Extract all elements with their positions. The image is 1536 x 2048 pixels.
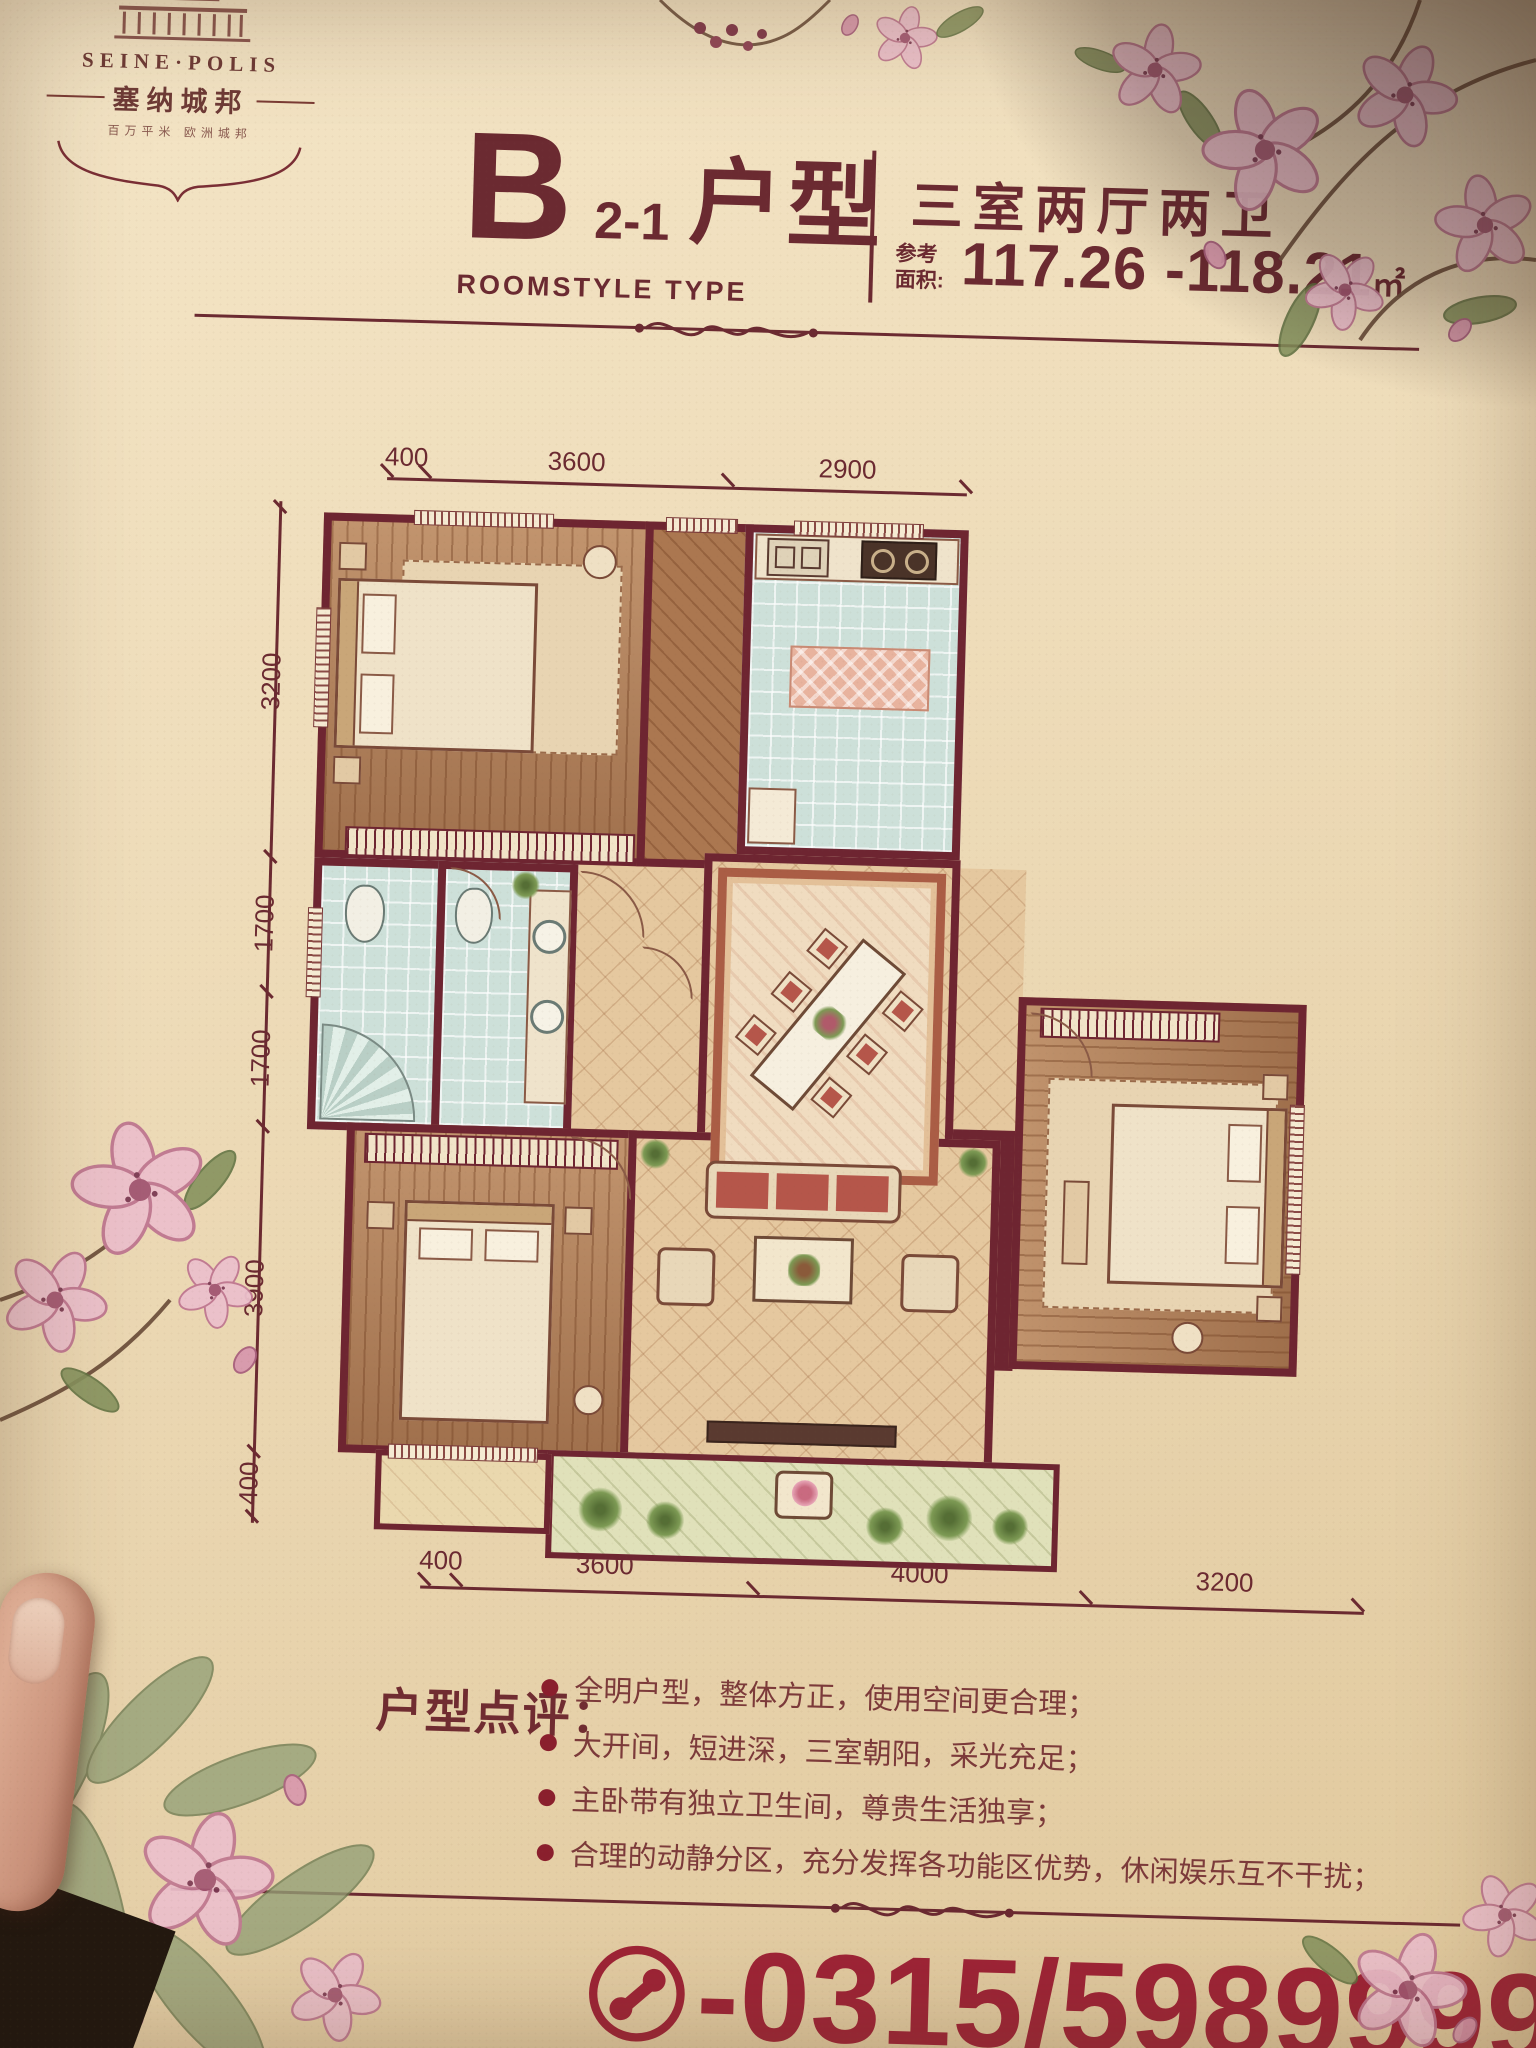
- nightstand-icon: [366, 1201, 395, 1230]
- dim-left-3: 1700: [244, 1016, 277, 1101]
- dim-left-5: 400: [232, 1441, 265, 1526]
- dim-tick: [721, 473, 735, 488]
- pillow: [1227, 1124, 1263, 1183]
- headboard: [1262, 1111, 1285, 1285]
- review-text: 合理的动静分区，充分发挥各功能区优势，休闲娱乐互不干扰；: [569, 1832, 1382, 1897]
- bed-icon: [1107, 1104, 1288, 1289]
- dim-top-1: 400: [371, 441, 442, 474]
- pillow: [418, 1227, 473, 1260]
- brand-name-en: SEINE·POLIS: [26, 46, 337, 80]
- area-label: 参考 面积:: [894, 241, 944, 295]
- bed-icon: [334, 578, 539, 754]
- contact-row: -0315/5989999: [583, 1929, 1536, 2048]
- headboard: [337, 581, 360, 745]
- flower-pot-icon: [792, 1480, 819, 1507]
- pillow: [361, 594, 397, 655]
- sofa-cushion: [776, 1173, 829, 1210]
- pillow: [484, 1229, 539, 1262]
- phone-number: -0315/5989999: [695, 1932, 1536, 2048]
- thumbnail: [5, 1595, 67, 1687]
- nightstand-icon: [333, 756, 362, 785]
- chair-cushion: [891, 1000, 914, 1023]
- sink-icon: [767, 538, 830, 578]
- brand-name-row: 塞纳城邦: [25, 75, 336, 123]
- sink-basin: [801, 547, 822, 570]
- bed-icon: [399, 1200, 555, 1424]
- cartouche-ornament: [53, 139, 305, 206]
- dim-left-1: 3200: [255, 639, 288, 724]
- review-item: 合理的动静分区，充分发挥各功能区优势，休闲娱乐互不干扰；: [536, 1831, 1457, 1899]
- headboard: [407, 1203, 551, 1225]
- dim-tick: [1079, 1590, 1093, 1605]
- area-unit: ㎡: [1371, 266, 1406, 304]
- entry-hall: [636, 521, 754, 869]
- brand-name-cn: 塞纳城邦: [112, 77, 249, 120]
- chair-cushion: [745, 1024, 768, 1047]
- plan-type-cn: 户型: [688, 155, 887, 254]
- bullet-icon: [538, 1788, 555, 1805]
- review-text: 大开间，短进深，三室朝阳，采光充足；: [572, 1722, 1095, 1779]
- dim-tick: [746, 1581, 760, 1596]
- window: [306, 907, 324, 997]
- nightstand-icon: [1256, 1296, 1283, 1323]
- dim-bottom-1: 400: [405, 1544, 476, 1577]
- scroll-flourish-icon: [631, 308, 822, 353]
- plan-code-variant: 2-1: [594, 191, 671, 253]
- floor-plan: 400 3600 2900 3200 1700 1700 3900 400 40…: [222, 415, 1417, 1702]
- dim-left-2: 1700: [248, 881, 281, 966]
- dim-tick: [959, 479, 973, 494]
- dim-top-2: 3600: [526, 445, 627, 479]
- brand-logo: SEINE·POLIS 塞纳城邦 百万平米 欧洲城邦: [23, 0, 339, 212]
- bullet-icon: [537, 1843, 554, 1860]
- nightstand-icon: [1262, 1074, 1289, 1101]
- sofa-icon: [705, 1160, 903, 1223]
- phone-icon: [583, 1940, 690, 2047]
- dim-tick: [1351, 1598, 1365, 1613]
- chair-cushion: [816, 937, 839, 960]
- entry-corridor: [949, 868, 1026, 1131]
- brochure-photo: SEINE·POLIS 塞纳城邦 百万平米 欧洲城邦 B 2-1 户型 ROOM…: [0, 0, 1536, 2048]
- bullet-icon: [541, 1678, 558, 1695]
- review-item: 主卧带有独立卫生间，尊贵生活独享；: [538, 1776, 1459, 1844]
- stove-icon: [860, 540, 937, 580]
- sink-basin: [775, 546, 796, 569]
- review-list: 全明户型，整体方正，使用空间更合理； 大开间，短进深，三室朝阳，采光充足； 主卧…: [536, 1666, 1462, 1912]
- area-value: 117.26 -118.21㎡: [960, 229, 1407, 310]
- rule-right: [257, 100, 315, 104]
- table-plant-icon: [788, 1254, 821, 1287]
- plan-code-letter: B: [461, 109, 575, 264]
- fridge-icon: [747, 787, 797, 844]
- armchair-icon: [900, 1254, 960, 1314]
- chair-cushion: [780, 981, 803, 1004]
- burner: [871, 549, 896, 574]
- sofa-cushion: [836, 1175, 889, 1212]
- bench-icon: [1061, 1180, 1089, 1265]
- nightstand-icon: [564, 1206, 593, 1235]
- burner: [905, 550, 930, 575]
- dim-bottom-4: 3200: [1174, 1566, 1275, 1600]
- chair-cushion: [856, 1043, 879, 1066]
- chair-cushion: [820, 1086, 843, 1109]
- pillow: [1224, 1206, 1260, 1265]
- pillow: [359, 673, 395, 734]
- armchair-icon: [656, 1247, 716, 1307]
- review-item: 大开间，短进深，三室朝阳，采光充足；: [539, 1721, 1460, 1789]
- dim-top-3: 2900: [797, 453, 898, 487]
- coffee-table-icon: [752, 1236, 854, 1305]
- area-number: 117.26 -118.21: [960, 230, 1373, 308]
- review-text: 主卧带有独立卫生间，尊贵生活独享；: [571, 1777, 1065, 1833]
- plan-type-en: ROOMSTYLE TYPE: [456, 269, 748, 308]
- area-label-line2: 面积:: [894, 268, 944, 296]
- rule-left: [47, 94, 105, 98]
- kitchen-rug: [789, 645, 931, 711]
- window: [666, 517, 738, 534]
- bullet-icon: [540, 1733, 557, 1750]
- dim-left-4: 3900: [238, 1246, 271, 1331]
- sofa-cushion: [716, 1172, 769, 1209]
- area-label-line1: 参考: [895, 241, 945, 269]
- scroll-flourish-icon: [827, 1888, 1018, 1933]
- building-icon: [102, 0, 264, 47]
- nightstand-icon: [339, 542, 368, 571]
- brochure-sheet: SEINE·POLIS 塞纳城邦 百万平米 欧洲城邦 B 2-1 户型 ROOM…: [0, 0, 1536, 2048]
- balcony-table-icon: [774, 1470, 833, 1520]
